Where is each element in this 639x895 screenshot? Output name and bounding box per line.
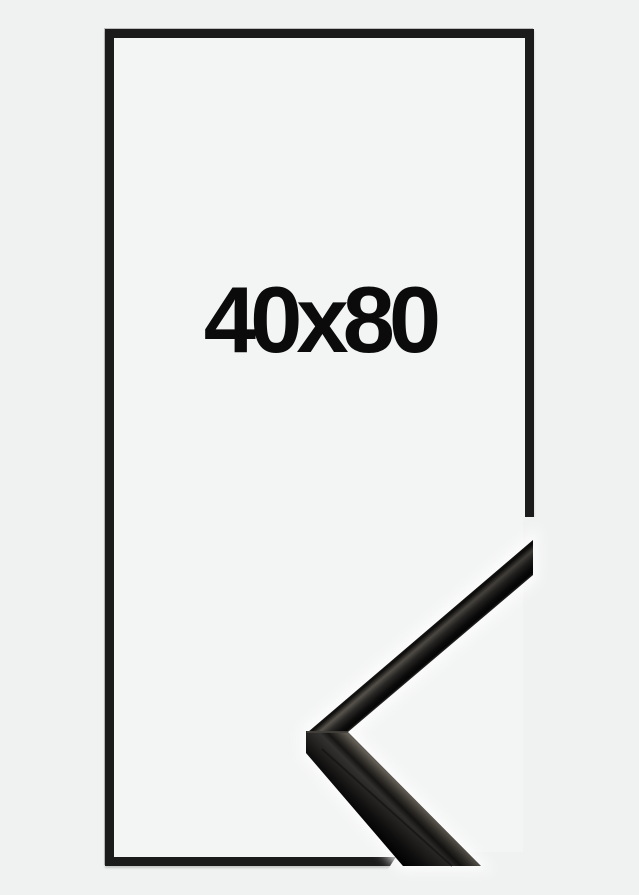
product-image: 40x80 <box>0 0 639 895</box>
mask-right-gap <box>523 517 593 895</box>
frame-outline <box>105 29 534 866</box>
size-label: 40x80 <box>105 273 534 367</box>
mask-bottom-gap <box>385 852 545 874</box>
